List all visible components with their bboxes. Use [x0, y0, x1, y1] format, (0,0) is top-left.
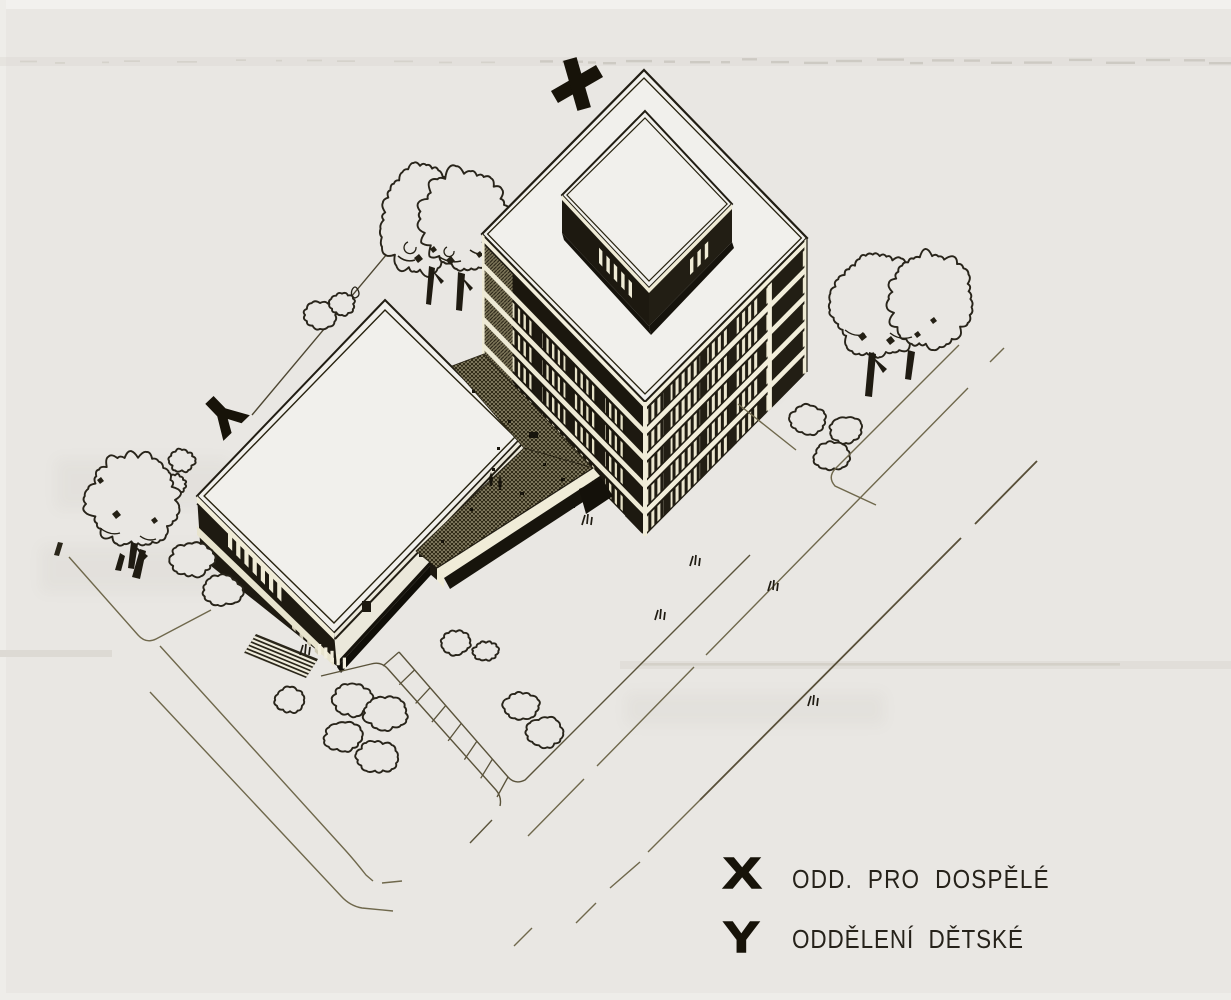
- svg-text:ODDĚLENÍ DĚTSKÉ: ODDĚLENÍ DĚTSKÉ: [792, 926, 1024, 955]
- svg-text:X: X: [723, 849, 761, 898]
- svg-text:Y: Y: [723, 914, 760, 962]
- svg-text:ODD. PRO DOSPĚLÉ: ODD. PRO DOSPĚLÉ: [792, 866, 1050, 895]
